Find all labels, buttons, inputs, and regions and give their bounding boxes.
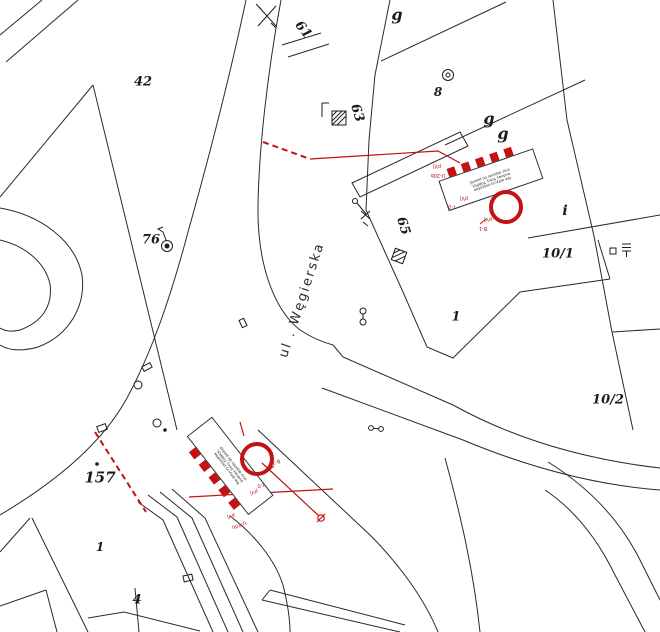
red-line-north <box>310 151 460 163</box>
landuse-letter-g: g <box>497 126 508 142</box>
utility-box-icon-2 <box>391 248 406 263</box>
parcel-label-1-south: 1 <box>96 541 104 553</box>
parcel-label-10-1: 10/1 <box>542 248 574 261</box>
cadastral-map: Nie dotyczy pojazdów budowy firmy TORPOL… <box>0 0 660 632</box>
electric-box-icon <box>610 244 631 257</box>
landuse-letter-g: g <box>391 7 402 23</box>
sign-label-pvj: pVj <box>460 196 468 201</box>
base-map-linework <box>0 0 660 632</box>
culvert-icon <box>97 424 108 433</box>
landuse-letter-g: g <box>483 111 494 127</box>
parcel-label-8: 8 <box>434 86 442 98</box>
parcel-label-4: 4 <box>132 594 141 607</box>
parcel-label-10-2: 10/2 <box>592 394 624 407</box>
parcel-label-42: 42 <box>134 76 152 89</box>
map-symbols <box>96 4 631 582</box>
parcel-label-157: 157 <box>84 471 115 486</box>
utility-box-icon <box>322 103 346 125</box>
double-point-icon <box>360 308 366 325</box>
linked-points-icon <box>369 426 384 432</box>
point-circle <box>134 381 142 389</box>
survey-point-icon <box>158 227 173 252</box>
sign-label-b1: B-1 <box>479 226 487 231</box>
sign-label-u20b: U-20b <box>431 173 446 178</box>
sign-label-t0: T-0 <box>448 204 456 209</box>
culvert-icon <box>183 574 193 582</box>
sign-label-pvj: pVj <box>433 164 441 169</box>
well-icon <box>443 70 454 81</box>
sign-label-pvj: pVj <box>484 217 492 222</box>
parcel-boundaries <box>0 0 660 632</box>
point-circle <box>153 419 161 427</box>
culvert-icon <box>239 318 247 327</box>
landuse-letter-i: i <box>562 204 567 218</box>
boundary-cross-icon <box>256 4 276 28</box>
sign-circle-north <box>489 190 523 224</box>
sign-circle-south <box>240 442 274 476</box>
red-diagonal-south <box>262 463 319 516</box>
parcel-label-76: 76 <box>142 234 160 247</box>
parcel-label-1-center: 1 <box>451 311 460 324</box>
building-outline-south <box>262 590 405 625</box>
point-dot <box>96 463 99 466</box>
red-dashed-line-north <box>263 142 310 159</box>
point-dot <box>164 429 167 432</box>
